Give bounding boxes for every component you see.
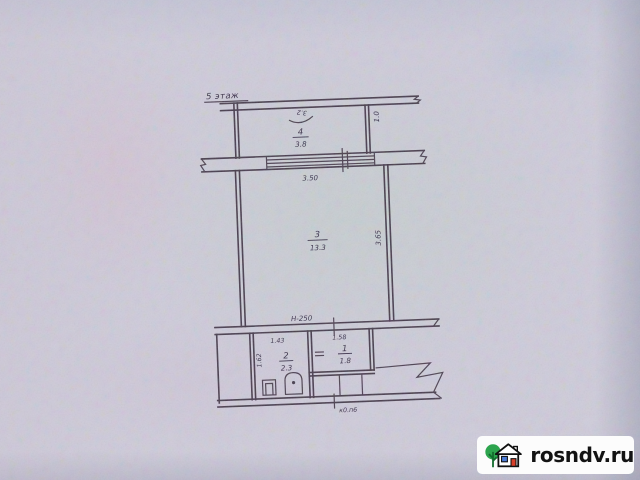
- room1-area: 1.8: [339, 356, 351, 365]
- room2-fraction-line: [279, 361, 293, 362]
- window-symbol: [266, 147, 375, 175]
- room4-area: 3.8: [295, 139, 307, 148]
- room3-left-wall: [235, 171, 245, 327]
- hall-wall-band: [215, 313, 440, 340]
- room4-number: 4: [298, 128, 304, 138]
- room2-number: 2: [283, 351, 289, 361]
- wall-break-icon: [200, 159, 205, 172]
- room3-fraction-line: [308, 240, 328, 241]
- dim-window-width: 3.50: [302, 174, 318, 183]
- wall-break-icon: [420, 150, 426, 163]
- scanned-floorplan-photo: 5 этаж 3.2 4 3.8: [0, 0, 640, 480]
- room2-area: 2.3: [281, 363, 293, 372]
- room1-number: 1: [342, 344, 348, 354]
- floor-label: 5 этаж: [206, 91, 239, 102]
- floor-plan-drawing: 5 этаж 3.2 4 3.8: [0, 0, 640, 480]
- room3-number: 3: [315, 230, 321, 240]
- dim-wc-width: 1.58: [332, 334, 346, 342]
- height-mark: Н-250: [291, 314, 313, 323]
- balcony-left-wall: [234, 103, 240, 158]
- watermark-badge: rosndv.ru: [477, 436, 634, 474]
- house-icon: [496, 444, 521, 466]
- room3-right-wall: [384, 165, 394, 321]
- bottom-note: к0.п6: [339, 407, 357, 415]
- dim-balcony-depth: 1.0: [373, 110, 381, 122]
- watermark-text: rosndv.ru: [530, 445, 634, 465]
- door-symbol: [315, 352, 324, 356]
- dim-bath-depth: 1.62: [256, 353, 264, 367]
- watermark-logo-icon: [484, 440, 525, 471]
- room4-fraction-line: [293, 137, 309, 138]
- sink-fixture: [285, 372, 303, 394]
- toilet-fixture: [262, 380, 276, 395]
- balcony-divider-wall: [365, 105, 370, 153]
- dim-room-depth: 3.65: [374, 229, 383, 245]
- duct-lines: [339, 374, 362, 396]
- dim-balcony-door: 3.2: [297, 108, 308, 116]
- balcony-outer-wall: [220, 96, 420, 111]
- room3-area: 13.3: [310, 243, 327, 253]
- room1-fraction-line: [338, 353, 352, 354]
- balcony-door-arc: [289, 116, 313, 123]
- wall-break-icon: [414, 96, 420, 103]
- bottom-wall: [218, 392, 440, 407]
- wall-tick: [334, 318, 335, 336]
- right-wall-break: [375, 362, 443, 401]
- note-tick: [334, 394, 335, 409]
- hall-left-wall: [217, 335, 220, 403]
- dim-bath-width: 1.43: [270, 337, 284, 345]
